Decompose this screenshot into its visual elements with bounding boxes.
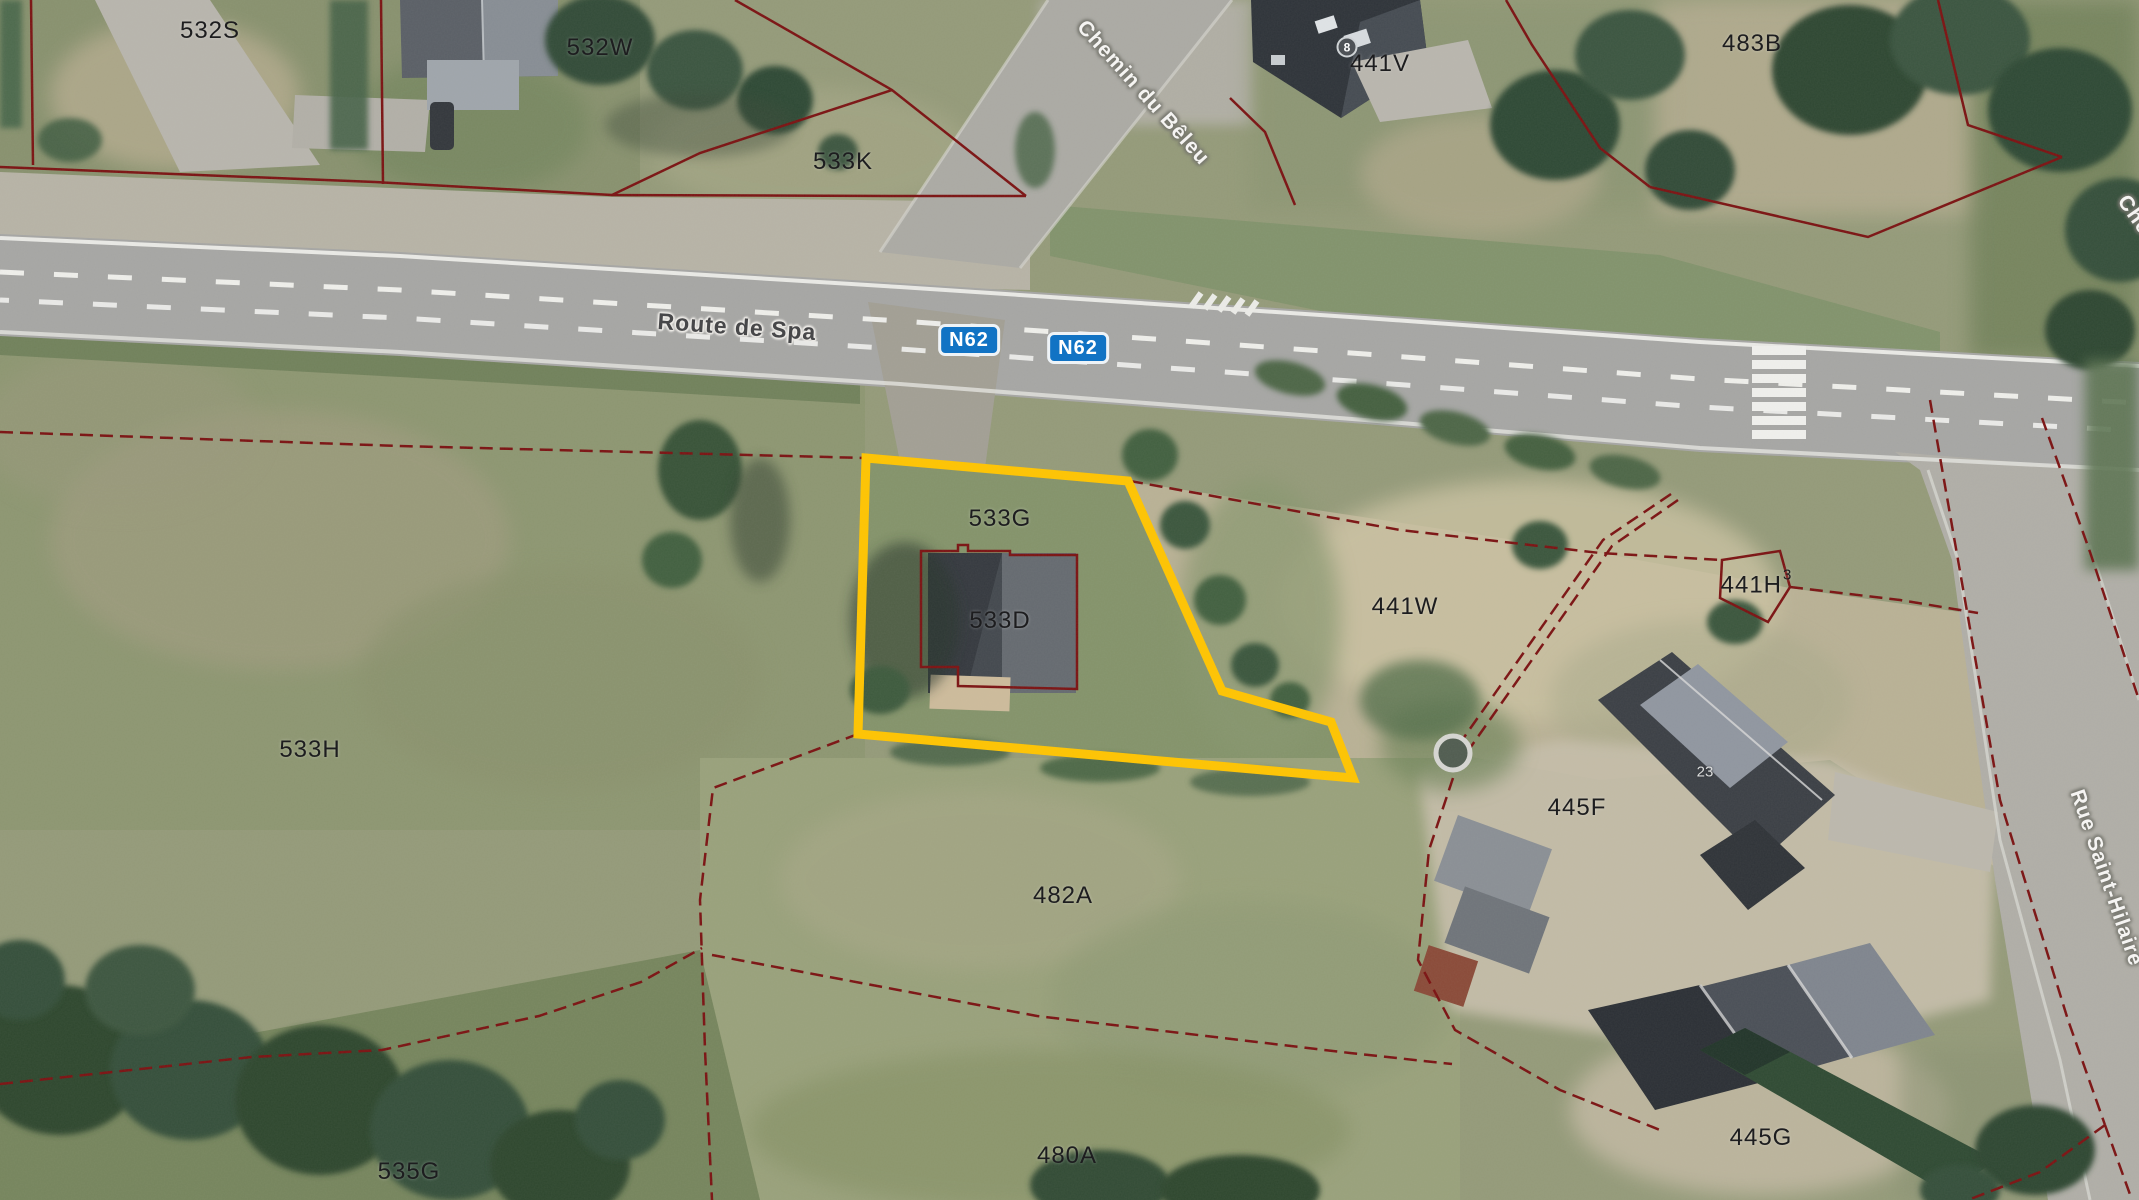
parcel-label-532w: 532W — [567, 34, 634, 62]
house-number-23: 23 — [1697, 764, 1714, 781]
parcel-441h-superscript: 3 — [1783, 567, 1792, 584]
parcel-label-445g: 445G — [1730, 1124, 1793, 1152]
parcel-label-532s: 532S — [180, 17, 240, 45]
parcel-label-441h3: 441H3 — [1721, 571, 1792, 600]
parcel-label-483b: 483B — [1722, 30, 1782, 58]
parcel-label-533h: 533H — [279, 736, 340, 764]
parcel-label-441v: 441V — [1350, 50, 1410, 78]
route-badge-n62-1: N62 — [938, 324, 1000, 356]
parcel-label-441w: 441W — [1372, 593, 1439, 621]
parcel-label-482a: 482A — [1033, 882, 1093, 910]
parcel-label-445f: 445F — [1548, 794, 1607, 822]
parcel-label-533d: 533D — [969, 607, 1030, 635]
house-number-badge-8: 8 — [1337, 37, 1358, 58]
parcel-label-535g: 535G — [378, 1158, 441, 1186]
parcel-label-533g: 533G — [969, 505, 1032, 533]
parcel-label-533k: 533K — [813, 148, 873, 176]
aerial-base — [0, 0, 2139, 1200]
map-canvas[interactable]: 532S 532W 533K 483B 441V 533G 533D 441W … — [0, 0, 2139, 1200]
photo-grain-overlay — [0, 0, 2139, 1200]
route-badge-n62-2: N62 — [1047, 332, 1109, 364]
parcel-label-480a: 480A — [1037, 1142, 1097, 1170]
